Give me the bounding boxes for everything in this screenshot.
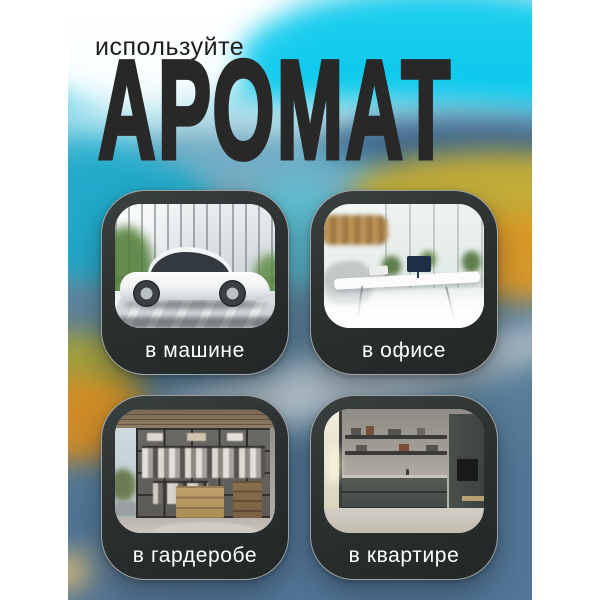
shelf-item — [366, 426, 374, 435]
wardrobe-photo — [115, 409, 275, 533]
tile-office: в офисе — [310, 190, 498, 375]
shelf-item — [399, 444, 409, 451]
tile-wardrobe: в гардеробе — [101, 395, 289, 580]
car-photo — [115, 204, 275, 328]
tile-wardrobe-label: в гардеробе — [102, 533, 288, 579]
pavement-shadow — [115, 317, 275, 328]
monitor-stand — [417, 272, 419, 278]
shelf-item — [351, 428, 361, 435]
monitor — [407, 256, 431, 272]
tile-office-label: в офисе — [311, 328, 497, 374]
kitchen-shelf — [345, 435, 447, 439]
kitchen-photo — [324, 409, 484, 533]
kitchen-floor — [324, 508, 484, 533]
hanging-clothes-row — [142, 446, 265, 478]
shelf-item — [356, 445, 367, 451]
office-plant — [462, 251, 481, 273]
wood-drawer-unit — [233, 481, 262, 518]
kitchen-shelf — [345, 451, 447, 455]
laptop — [369, 265, 389, 275]
folded-clothes-stack — [147, 433, 163, 442]
foreground-light-glow — [324, 298, 484, 328]
sofa-arm — [115, 501, 137, 516]
wood-slat-ceiling — [115, 409, 275, 428]
tile-car-label: в машине — [102, 328, 288, 374]
car-rear-wheel — [219, 280, 246, 307]
built-in-oven — [457, 456, 478, 481]
folded-clothes-stack — [187, 433, 206, 442]
office-bookshelf — [324, 215, 388, 245]
tile-kitchen-label: в квартире — [311, 533, 497, 579]
office-photo — [324, 204, 484, 328]
white-sedan — [120, 251, 270, 308]
poster-artwork: используйте АРОМАТ — [68, 0, 532, 600]
shelf-item — [417, 428, 425, 435]
tile-kitchen: в квартире — [310, 395, 498, 580]
shelf-item — [426, 445, 437, 451]
tile-car: в машине — [101, 190, 289, 375]
drawer-seam — [342, 491, 448, 493]
poster-title: АРОМАТ — [98, 40, 452, 180]
base-cabinets — [342, 478, 448, 508]
poster-canvas: используйте АРОМАТ — [0, 0, 600, 600]
shelf-item — [388, 429, 401, 435]
usage-tile-grid: в машине — [101, 190, 498, 580]
folded-clothes-stack — [227, 433, 243, 442]
wood-drawer-unit — [176, 486, 224, 518]
side-table — [462, 496, 484, 501]
faucet — [406, 469, 409, 475]
